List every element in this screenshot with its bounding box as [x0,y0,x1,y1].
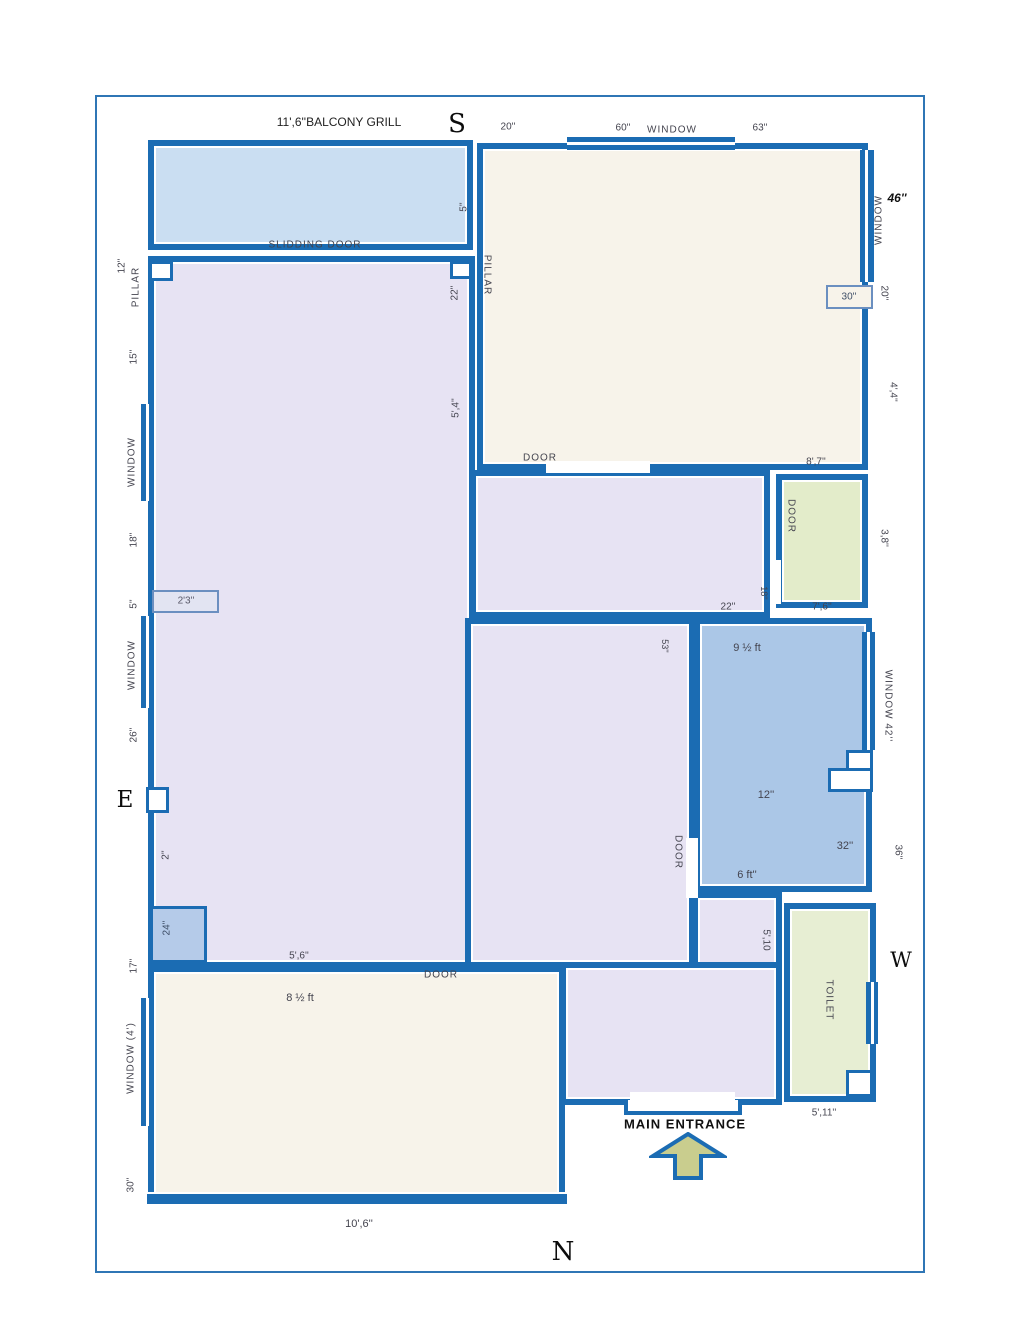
dim-18-mid: 18'' [759,586,769,599]
dim-15-left: 15'' [129,350,140,365]
door-top-label: DOOR [523,453,557,464]
main-entrance-label: MAIN ENTRANCE [624,1117,746,1132]
toilet-corner-box [846,1070,873,1097]
pillar-right-label: PILLAR [482,255,493,295]
pillar-top-right [450,261,472,279]
dim-5-balcony: 5'' [459,202,470,211]
dim-18-left: 18'' [129,533,140,548]
dim-30-left: 30'' [126,1178,137,1193]
box-24-label: 24'' [162,921,173,936]
dim-3-8: 3,8'' [879,529,890,547]
dim-5-6: 5',6'' [289,951,309,962]
compass-east: E [117,787,134,813]
dim-8half-ft: 8 ½ ft [286,992,314,1004]
dim-36: 36'' [893,845,904,860]
floor-plan: S N E W 11',6''BALCONY GRILL 20'' 60'' W… [0,0,1020,1320]
green-room-door-gap [771,560,781,604]
dim-12-pillar: 12'' [117,259,128,274]
window-2-label: WINDOW [127,640,138,690]
dim-46: 46'' [887,191,906,205]
dim-5-11: 5',11'' [812,1108,836,1119]
pillar-top-left [149,261,173,281]
box-24 [150,906,207,963]
dim-20-east: 20'' [879,286,890,301]
bottom-door-label: DOOR [424,970,458,981]
dim-4-4: 4',4'' [888,382,899,402]
window-4ft-label: WINDOW (4') [126,1022,137,1094]
toilet-window [866,982,878,1044]
east-window-top [860,150,874,282]
dim-6ft-blue: 6 ft'' [737,869,757,881]
dim-8-7: 8',7'' [806,457,826,468]
dim-5-10: 5',10 [761,929,772,950]
box-2-3-label: 2'3'' [178,596,195,607]
dim-12-blue: 12'' [758,789,774,801]
slidding-door-label: SLIDDING DOOR [268,240,361,251]
toilet-label: TOILET [824,980,835,1021]
left-window-2 [141,616,154,708]
pillar-left-label: PILLAR [131,267,142,307]
dim-10-6: 10',6'' [345,1218,373,1230]
middle-top-room [470,470,770,618]
dim-2-left: 2'' [161,850,172,859]
entrance-recess [624,1100,742,1115]
pillar-mid-left [146,787,169,813]
top-right-room [477,143,868,470]
dim-5-4: 5',4'' [451,398,462,418]
left-window-3 [141,998,154,1126]
green-door-label: DOOR [786,499,797,533]
dim-26-left: 26'' [129,728,140,743]
top-window-label: WINDOW [647,125,697,136]
left-window-1 [141,404,154,501]
blue-room-jamb-2 [828,768,873,792]
window-1-label: WINDOW [127,437,138,487]
dim-53: 53'' [660,639,670,652]
dim-60-top: 60'' [616,123,631,134]
east-window-label: WINDOW [874,195,885,245]
blue-room-window [862,632,875,750]
top-right-room-door-gap [546,461,650,473]
dim-20-top: 20'' [501,122,516,133]
dim-22-pillar: 22'' [450,286,461,301]
dim-7-6: 7',6'' [812,602,832,613]
dim-17-left: 17'' [129,959,140,974]
dim-22-mid: 22'' [721,602,736,613]
compass-south: S [448,109,466,139]
balcony-room [148,140,473,250]
entry-hall [560,962,782,1105]
top-window [567,137,735,150]
compass-north: N [552,1237,575,1267]
balcony-grill-label: 11',6''BALCONY GRILL [277,115,402,129]
dim-9half-ft: 9 ½ ft [733,642,761,654]
window-42-label: WINDOW 42'' [883,670,894,743]
dim-63-top: 63'' [753,123,768,134]
dim-32-blue: 32'' [837,840,853,852]
bottom-left-room [148,966,565,1206]
bottom-wall [145,1192,569,1206]
compass-west: W [890,948,912,972]
green-door-room [776,474,868,608]
middle-room [465,618,695,968]
box-30-label: 30'' [842,292,857,303]
middle-room-door-gap [686,838,698,898]
mid-door-label: DOOR [673,835,684,869]
dim-5-left: 5'' [129,599,140,608]
entrance-arrow-icon [649,1132,727,1180]
